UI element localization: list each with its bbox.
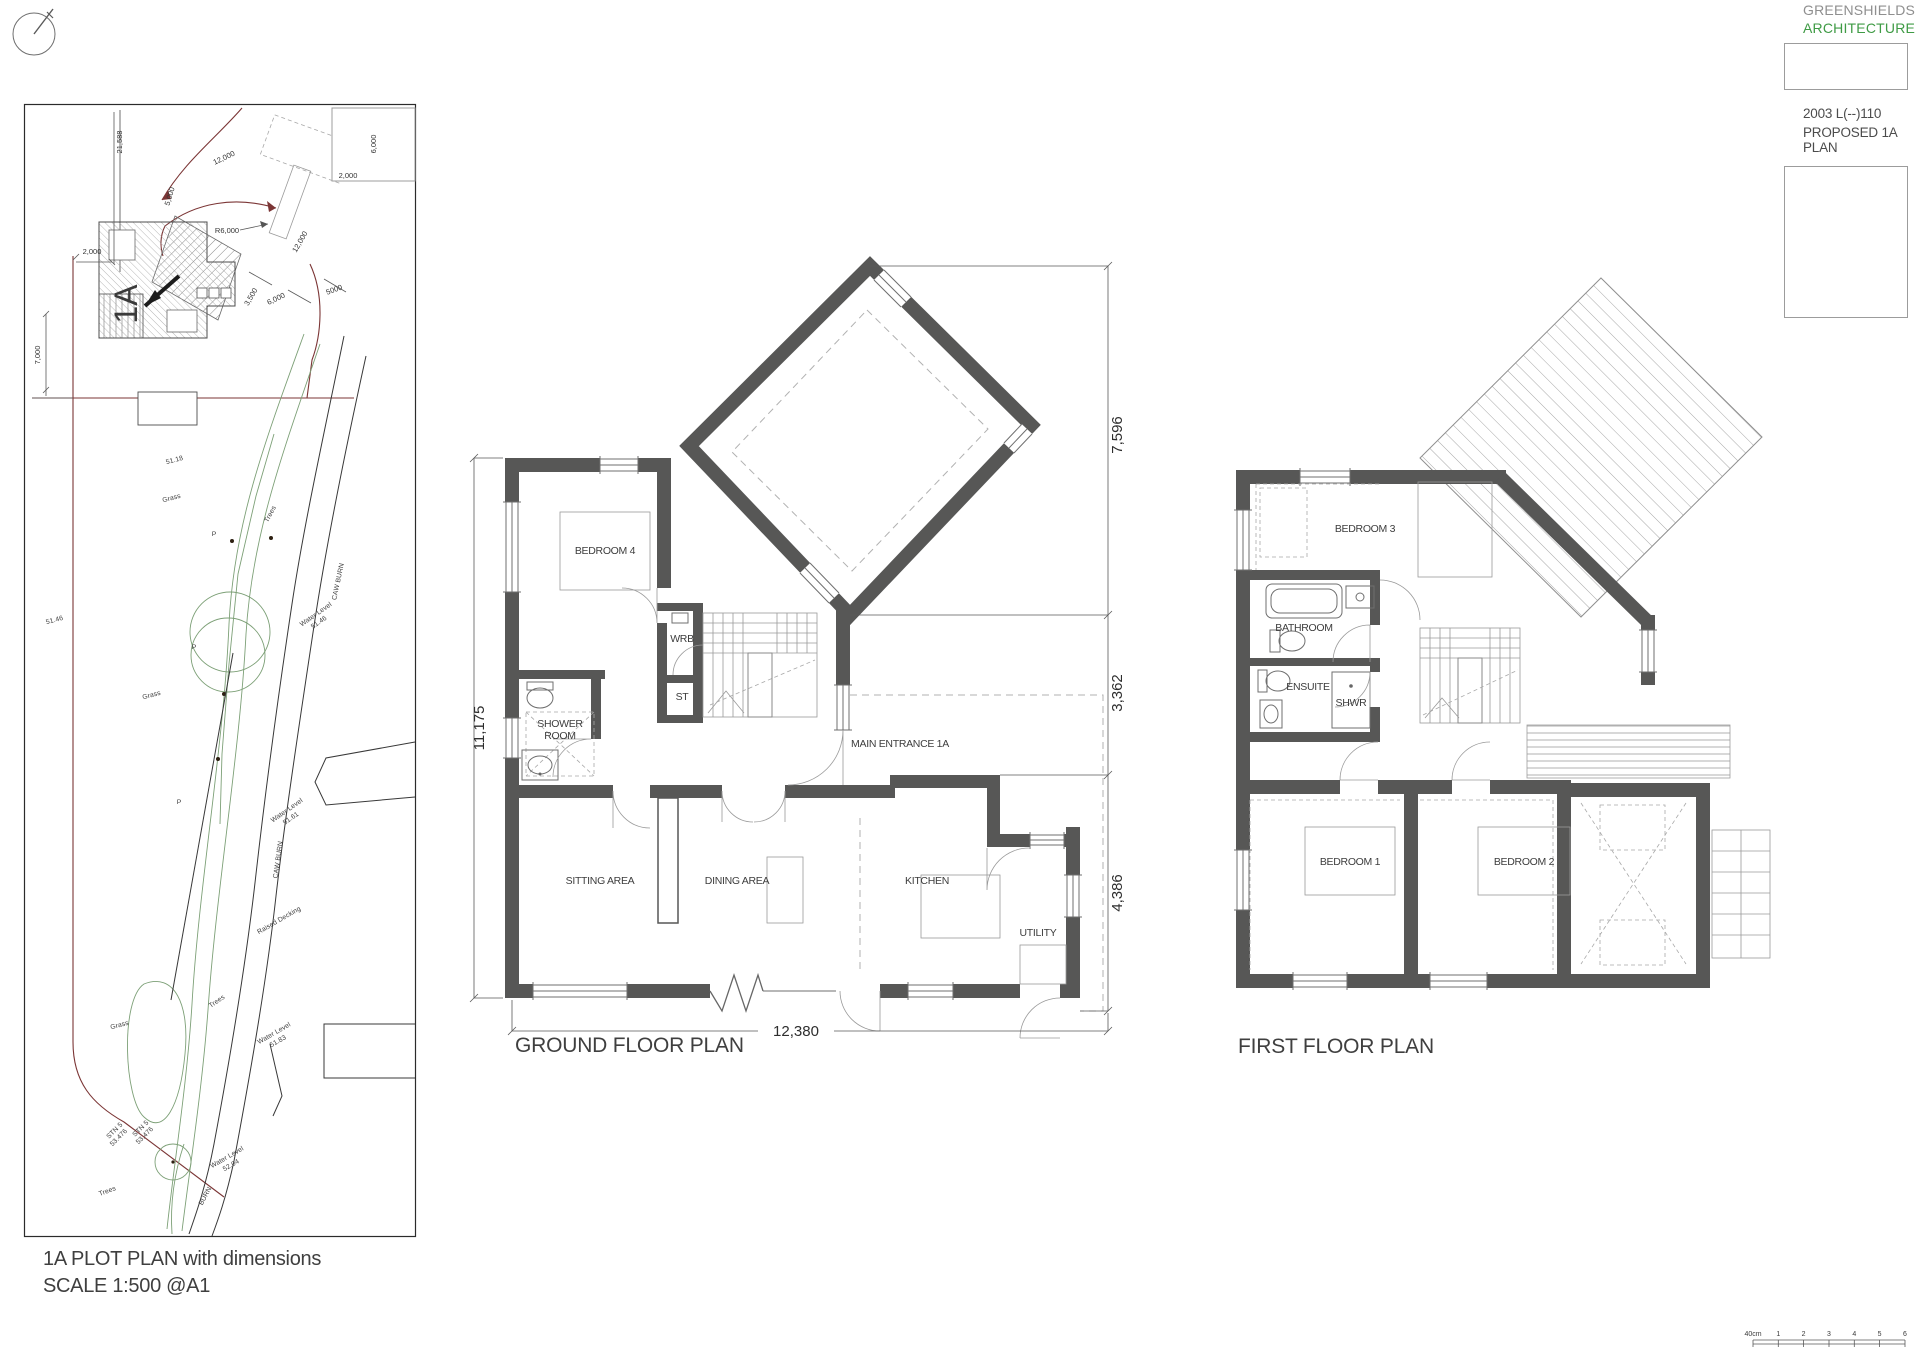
room-wrb: WRB [670, 633, 694, 645]
first-floor-caption: FIRST FLOOR PLAN [1238, 1035, 1434, 1059]
scale-tick-label: 5 [1878, 1331, 1882, 1338]
room-sitting: SITTING AREA [566, 875, 635, 887]
room-bedroom3: BEDROOM 3 [1335, 523, 1396, 535]
room-bedroom2: BEDROOM 2 [1494, 856, 1555, 868]
dim-right-mid: 3,362 [1109, 674, 1126, 712]
drawing-title: PROPOSED 1A PLAN [1803, 125, 1920, 155]
title-block-logo-box [1784, 43, 1908, 90]
room-st: ST [676, 691, 690, 703]
room-shower-line1: SHOWER [537, 718, 583, 730]
plot-plan-caption: 1A PLOT PLAN with dimensions SCALE 1:500… [43, 1246, 321, 1300]
dim-boundary-left: 21,588 [115, 131, 124, 154]
bathroom-fixtures [1266, 584, 1374, 652]
dim-offset-west: 2,000 [83, 247, 102, 256]
point-marker: P [177, 799, 182, 806]
garage-wing [689, 266, 1032, 615]
room-main-entrance: MAIN ENTRANCE 1A [851, 738, 949, 750]
scale-tick-label: 1 [1776, 1331, 1780, 1338]
dim-right-top: 7,596 [1109, 416, 1126, 454]
project-code: 2003 L(--)110 [1803, 106, 1920, 121]
ground-floor-plan: BEDROOM 4 WRB ST SHOWER ROOM MAIN ENTRAN… [460, 245, 1140, 1085]
dim-offset-ne: 2,000 [339, 171, 358, 180]
staircase [703, 613, 817, 717]
dim-visitor-bay: 6,000 [369, 135, 378, 154]
door-swings [553, 588, 1060, 1038]
plot-house-label: 1A [108, 284, 144, 324]
windows [503, 456, 1082, 1000]
room-bedroom4: BEDROOM 4 [575, 545, 636, 557]
point-marker: P [212, 531, 217, 538]
room-shower-abbr: SHWR [1336, 697, 1368, 709]
void-room [1581, 803, 1686, 965]
room-shower-line2: ROOM [544, 730, 575, 742]
drawing-sheet: GREENSHIELDS ARCHITECTURE 2003 L(--)110 … [0, 0, 1920, 1354]
room-kitchen: KITCHEN [905, 875, 949, 887]
dim-left-height: 11,175 [471, 706, 488, 751]
dim-bottom-width: 12,380 [773, 1023, 819, 1040]
scale-tick-label: 6 [1903, 1331, 1907, 1338]
scale-tick-label: 2 [1802, 1331, 1806, 1338]
north-arrow-icon [6, 2, 76, 68]
room-utility: UTILITY [1020, 927, 1057, 939]
plot-plan-drawing: 1A [24, 104, 416, 1237]
plot-plan-caption-line2: SCALE 1:500 @A1 [43, 1273, 321, 1300]
room-dining: DINING AREA [705, 875, 770, 887]
scale-bar: 40cm 1 2 3 4 5 6 [1745, 1320, 1915, 1352]
scale-tick-label: 3 [1827, 1331, 1831, 1338]
decking-hatch [1527, 725, 1730, 778]
room-bedroom1: BEDROOM 1 [1320, 856, 1381, 868]
room-bathroom: BATHROOM [1275, 622, 1333, 634]
external-steps [1712, 830, 1770, 958]
plot-plan-caption-line1: 1A PLOT PLAN with dimensions [43, 1246, 321, 1273]
scale-tick-label: 4 [1852, 1331, 1856, 1338]
room-ensuite: ENSUITE [1286, 681, 1330, 693]
ff-staircase [1420, 628, 1520, 723]
ground-floor-caption: GROUND FLOOR PLAN [515, 1034, 744, 1058]
point-marker: P [192, 644, 197, 651]
room-labels: BEDROOM 4 WRB ST SHOWER ROOM MAIN ENTRAN… [537, 545, 1057, 939]
firm-name-line2: ARCHITECTURE [1803, 20, 1920, 36]
first-floor-plan: BEDROOM 3 BATHROOM ENSUITE SHWR BEDROOM … [1220, 270, 1820, 1050]
firm-name-line1: GREENSHIELDS [1803, 2, 1920, 18]
dim-garden-depth: 7,000 [33, 346, 42, 365]
dim-right-bottom: 4,386 [1109, 874, 1126, 912]
dim-corner-radius: R6,000 [215, 226, 239, 235]
patio-door [710, 975, 836, 1011]
scale-origin-label: 40cm [1744, 1331, 1761, 1338]
